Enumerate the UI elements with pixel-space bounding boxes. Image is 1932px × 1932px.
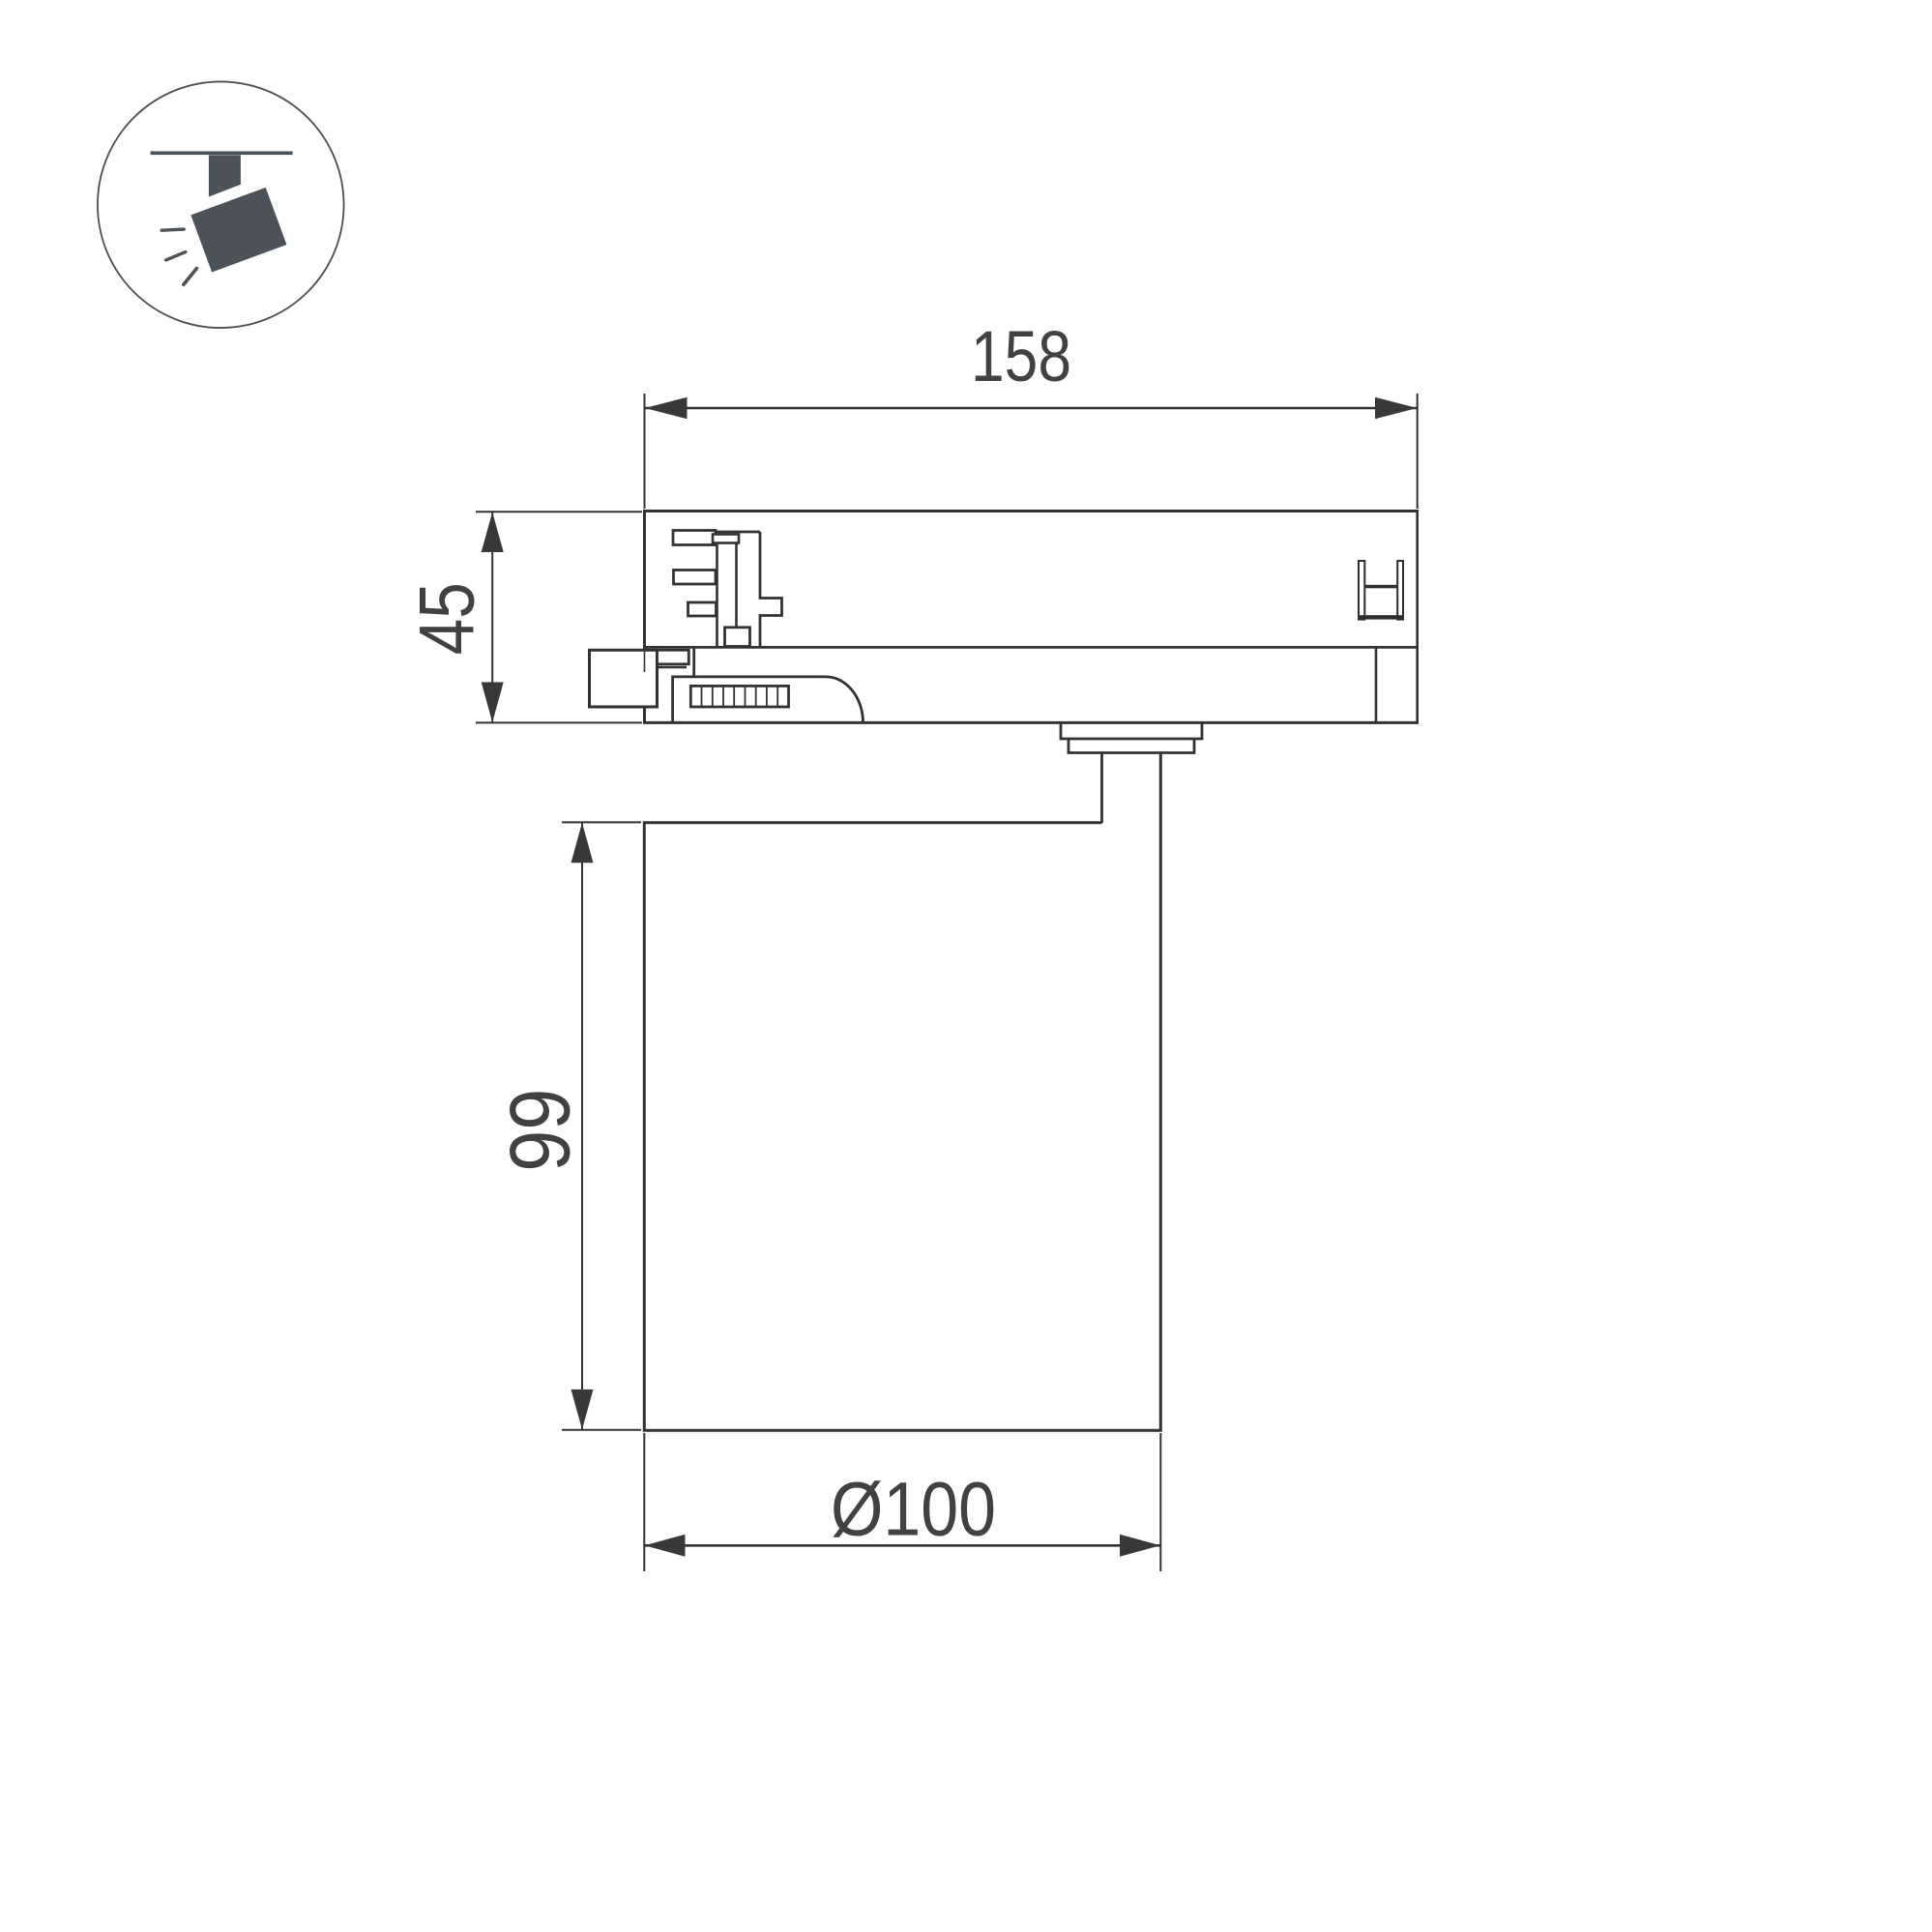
svg-text:45: 45 — [404, 582, 491, 655]
svg-text:Ø100: Ø100 — [831, 1466, 996, 1552]
svg-text:158: 158 — [971, 316, 1071, 396]
svg-text:99: 99 — [492, 1089, 588, 1172]
